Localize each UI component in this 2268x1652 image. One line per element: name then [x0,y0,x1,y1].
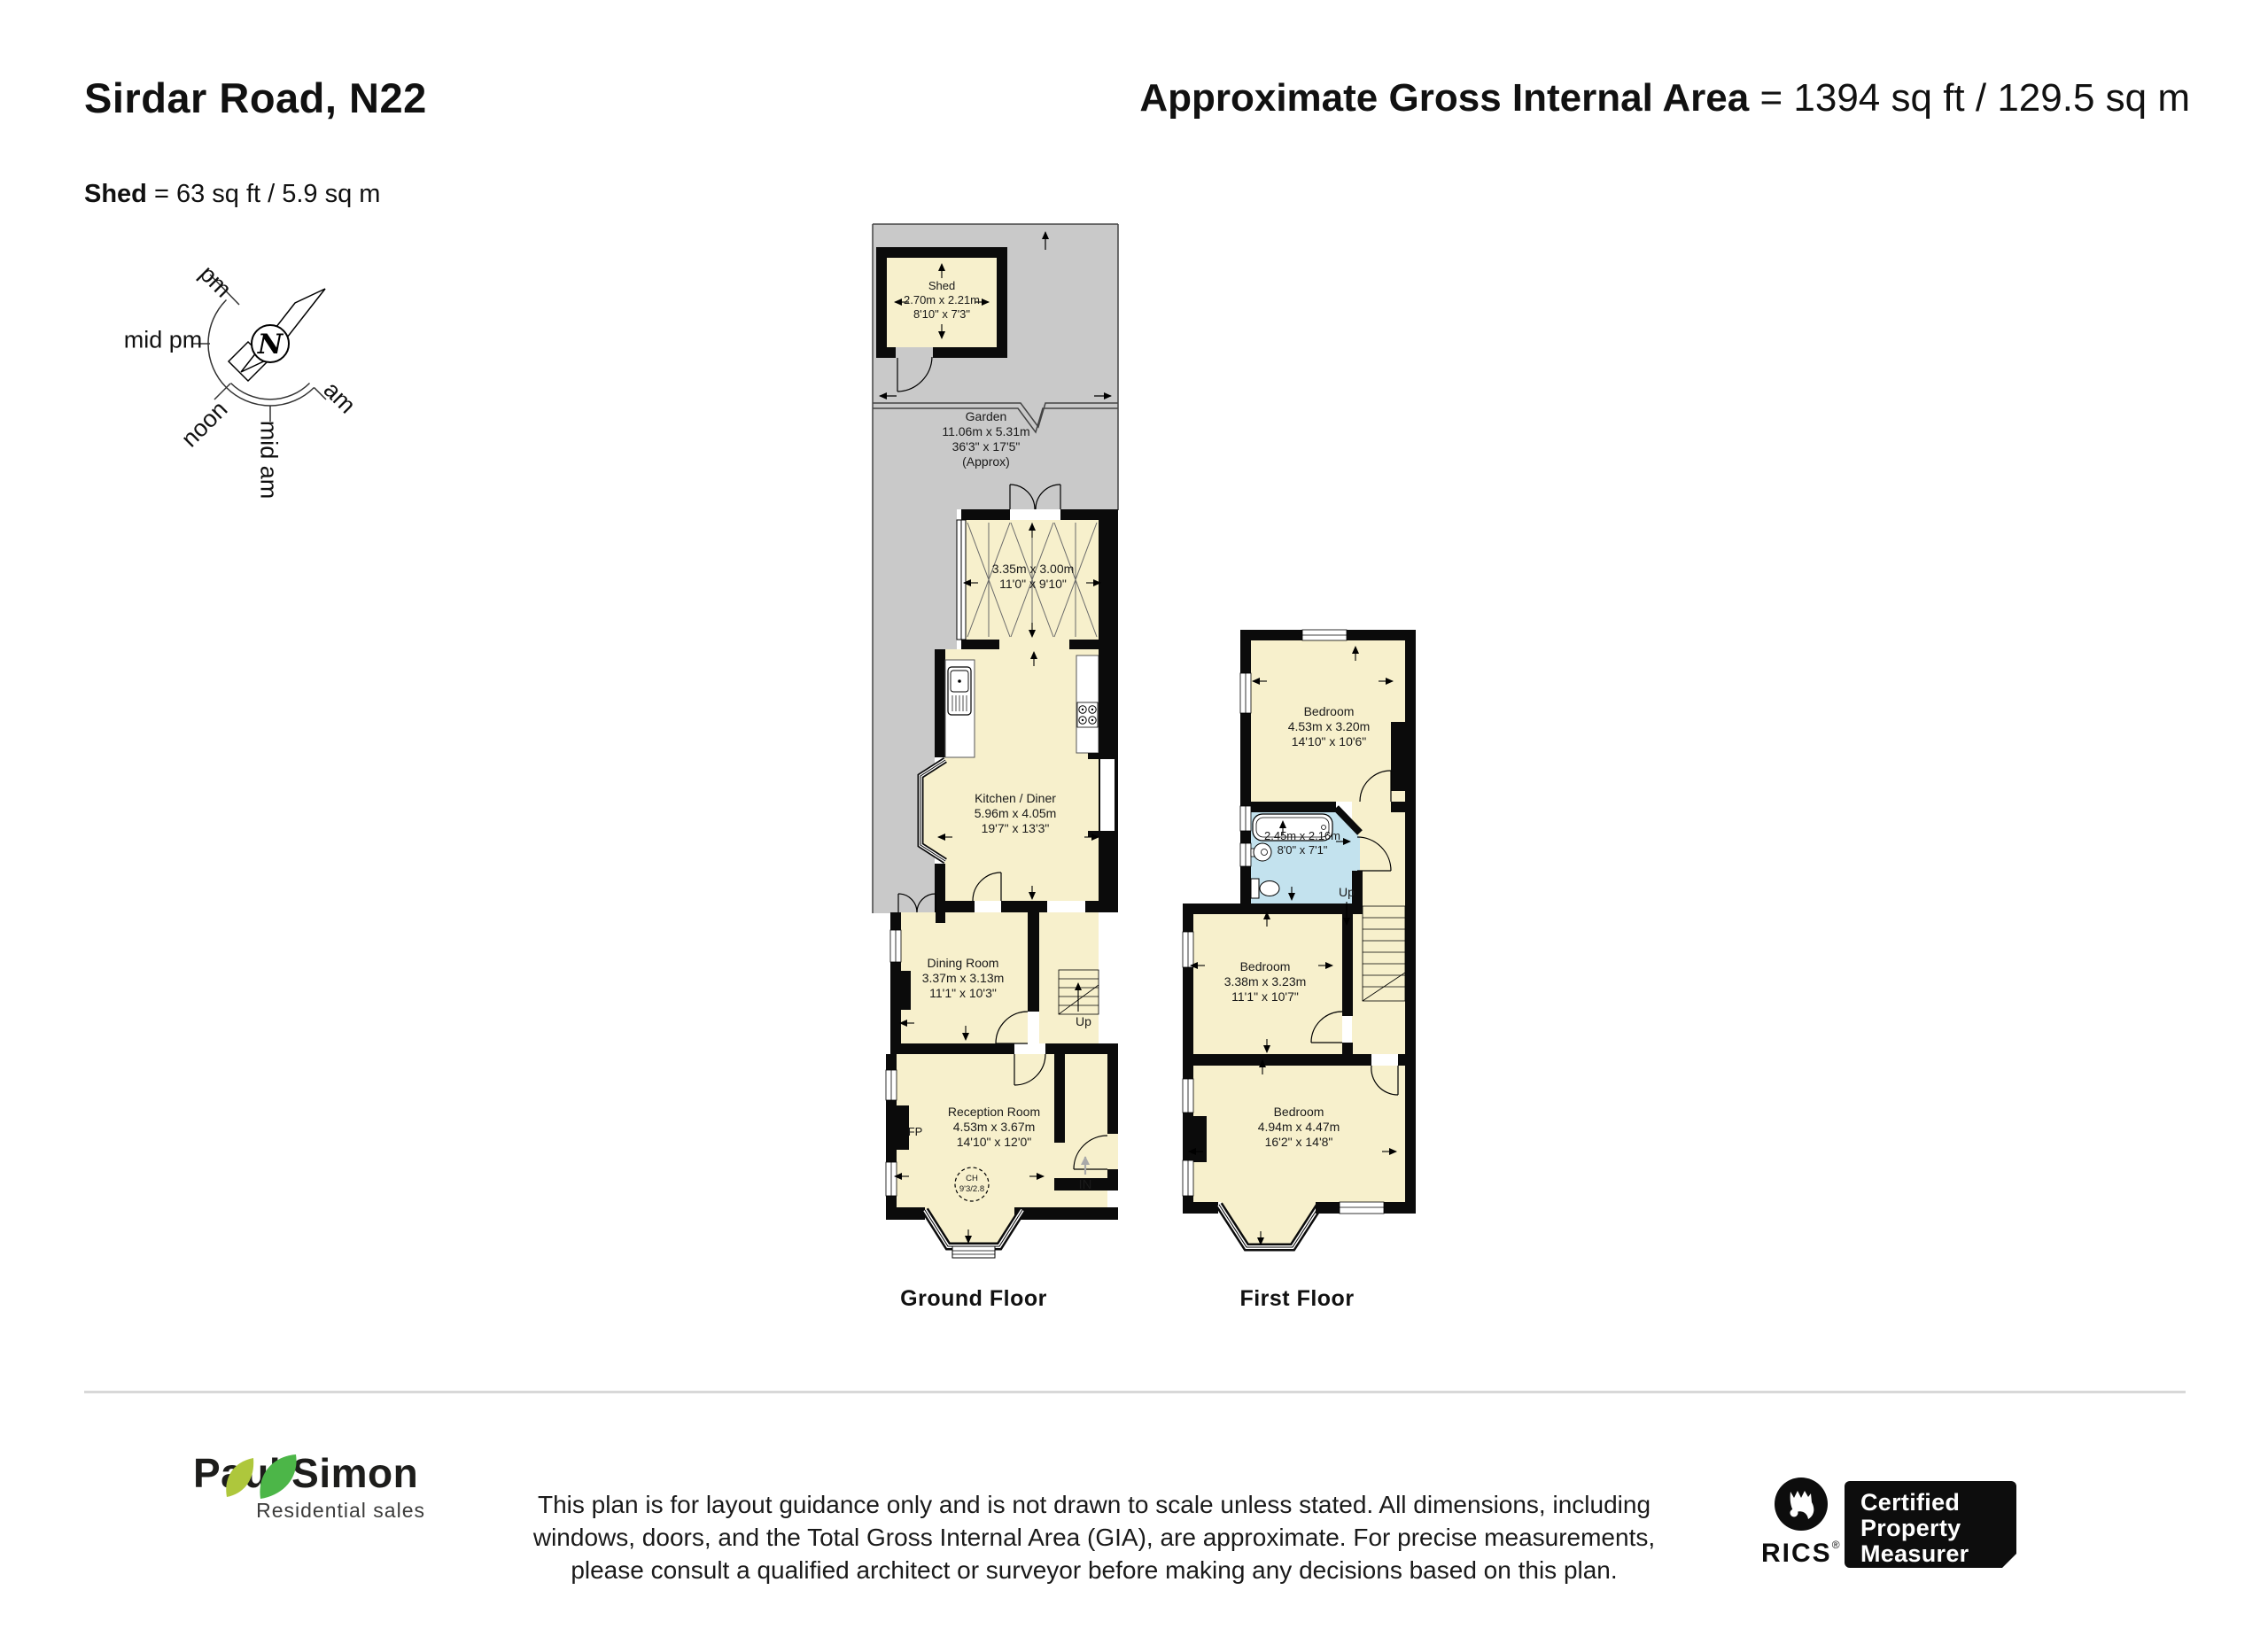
floorplan-page: { "header": { "title": "Sirdar Road, N22… [0,0,2268,1652]
bottom-right-window [1340,1202,1384,1214]
page-title: Sirdar Road, N22 [84,74,427,122]
first-up-label: Up [1339,885,1355,899]
shed-area-line: Shed = 63 sq ft / 5.9 sq m [84,180,380,209]
footer-divider [84,1391,2186,1393]
certified-property-measurer-badge: Certified Property Measurer [1845,1481,2016,1568]
shed-area-value: = 63 sq ft / 5.9 sq m [147,180,381,208]
north-arrow-icon: N [229,289,325,381]
conservatory-label: 3.35m x 3.00m11'0" x 9'10" [992,562,1075,592]
north-letter: N [257,329,284,361]
compass-label-midam: mid am [255,421,283,500]
kitchen-counter-right [1076,655,1099,753]
disclaimer-text: This plan is for layout guidance only an… [505,1488,1683,1586]
fireplace-label: FP [908,1125,923,1138]
ground-floor-title: Ground Floor [900,1286,1047,1312]
reception-room-label: Reception Room4.53m x 3.67m14'10" x 12'0… [948,1105,1040,1150]
agency-logo: PaulSimon Residential sales [193,1454,441,1523]
rics-name: RICS® [1761,1539,1841,1569]
kitchen-label: Kitchen / Diner5.96m x 4.05m19'7" x 13'3… [975,791,1057,836]
dining-room-label: Dining Room3.37m x 3.13m11'1" x 10'3" [922,956,1005,1001]
gia-label: Approximate Gross Internal Area [1139,76,1749,120]
shed-area-label: Shed [84,180,147,208]
rics-logo: RICS® [1761,1476,1841,1569]
gross-internal-area: Approximate Gross Internal Area = 1394 s… [1139,76,2190,120]
bedroom3-label: Bedroom4.94m x 4.47m16'2" x 14'8" [1258,1105,1340,1150]
badge-fold-corner [2002,1554,2016,1568]
window-band [957,520,966,640]
rics-lion-icon [1767,1476,1835,1536]
bedroom1-chimney [1391,722,1405,791]
gia-value: = 1394 sq ft / 129.5 sq m [1749,76,2190,120]
bathroom-label: 2.45m x 2.16m8'0" x 7'1" [1264,829,1340,857]
sink-icon [948,667,971,715]
bedroom3-chimney [1193,1116,1207,1162]
shed-room-label: Shed2.70m x 2.21m8'10" x 7'3" [904,279,980,322]
dining-window [890,930,901,962]
first-floor-title: First Floor [1239,1286,1354,1312]
bedroom1-label: Bedroom4.53m x 3.20m14'10" x 10'6" [1288,704,1371,749]
bedroom1-top-window [1302,630,1347,640]
ceiling-height-label: CH9'3/2.8 [959,1174,984,1195]
leaf-icon [220,1454,326,1501]
ground-up-label: Up [1076,1014,1091,1028]
reception-room [886,1054,1118,1258]
garden-label: Garden11.06m x 5.31m36'3" x 17'5"(Approx… [942,409,1029,469]
entry-in-label: IN [1079,1177,1092,1192]
bedroom2-label: Bedroom3.38m x 3.23m11'1" x 10'7" [1224,959,1307,1004]
compass-label-midpm: mid pm [124,327,203,354]
agency-tagline: Residential sales [193,1499,425,1523]
dining-chimney [901,971,911,1010]
